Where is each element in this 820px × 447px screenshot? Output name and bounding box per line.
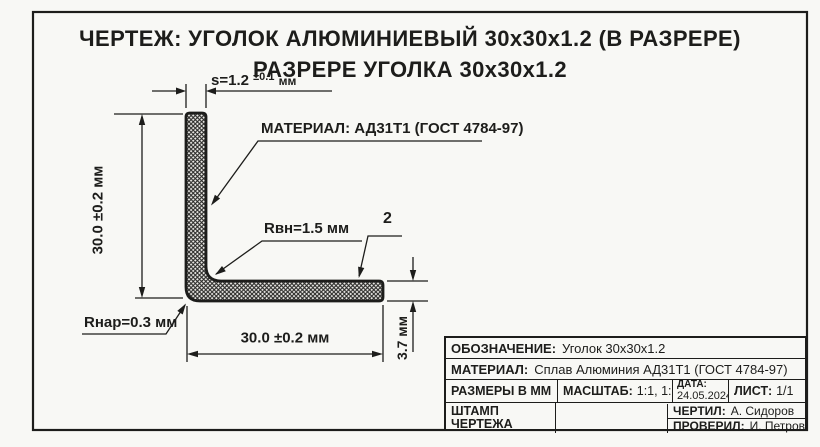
units-cell: РАЗМЕРЫ В ММ: [446, 380, 557, 402]
dimension-wall-thickness: s=1.2 ±0.1 мм: [211, 71, 296, 89]
wall-thickness-value: s=1.2: [211, 72, 249, 89]
designation-label: ОБОЗНАЧЕНИЕ:: [451, 341, 556, 356]
designation-row: ОБОЗНАЧЕНИЕ: Уголок 30x30x1.2: [446, 338, 805, 358]
drawing-title-line2: РАЗРЕРЕ УГОЛКА 30x30x1.2: [0, 57, 820, 83]
sheet-label: ЛИСТ:: [734, 384, 772, 398]
checked-value: И. Петров: [750, 419, 805, 433]
dimension-height: 30.0 ±0.2 мм: [90, 166, 107, 255]
dimension-flange-thickness: 3.7 мм: [394, 316, 410, 360]
outer-radius-callout: Rнар=0.3 мм: [84, 314, 177, 331]
wall-thickness-tolerance: ±0.1: [253, 71, 274, 83]
sheet-cell: ЛИСТ: 1/1: [728, 380, 805, 402]
stamp-line2: ЧЕРТЕЖА: [451, 418, 513, 431]
dimension-width: 30.0 ±0.2 мм: [241, 330, 330, 347]
checked-label: ПРОВЕРИЛ:: [673, 419, 745, 433]
date-value: 24.05.2024: [677, 390, 728, 402]
date-cell: ДАТА: 24.05.2024: [672, 380, 728, 402]
stamp-cell: ШТАМП ЧЕРТЕЖА: [446, 403, 555, 433]
scale-cell: МАСШТАБ: 1:1, 1:2: [557, 380, 672, 402]
wall-thickness-unit: мм: [279, 74, 297, 88]
units-label: РАЗМЕРЫ В ММ: [451, 384, 551, 398]
drawn-label: ЧЕРТИЛ:: [673, 404, 726, 418]
designation-value: Уголок 30x30x1.2: [562, 341, 665, 356]
material-label: МАТЕРИАЛ:: [451, 362, 528, 377]
material-value: Сплав Алюминия АД31Т1 (ГОСТ 4784-97): [534, 362, 787, 377]
sheet-value: 1/1: [776, 384, 793, 398]
scale-label: МАСШТАБ:: [563, 384, 633, 398]
date-label: ДАТА:: [677, 380, 707, 390]
drawing-sheet: ЧЕРТЕЖ: УГОЛОК АЛЮМИНИЕВЫЙ 30x30x1.2 (В …: [0, 0, 820, 447]
checked-row: ПРОВЕРИЛ: И. Петров: [668, 418, 805, 433]
inner-radius-callout: Rвн=1.5 мм: [264, 220, 349, 237]
drawn-row: ЧЕРТИЛ: А. Сидоров: [668, 404, 805, 418]
item-number-callout: 2: [383, 210, 392, 228]
scale-value: 1:1, 1:2: [637, 384, 672, 398]
material-callout: МАТЕРИАЛ: АД31Т1 (ГОСТ 4784-97): [261, 120, 523, 137]
drawing-title-line1: ЧЕРТЕЖ: УГОЛОК АЛЮМИНИЕВЫЙ 30x30x1.2 (В …: [0, 26, 820, 52]
drawn-value: А. Сидоров: [731, 404, 794, 418]
info-row: РАЗМЕРЫ В ММ МАСШТАБ: 1:1, 1:2 ДАТА: 24.…: [446, 379, 805, 402]
stamp-row: ШТАМП ЧЕРТЕЖА ЧЕРТИЛ: А. Сидоров ПРОВЕРИ…: [446, 402, 805, 433]
material-row: МАТЕРИАЛ: Сплав Алюминия АД31Т1 (ГОСТ 47…: [446, 358, 805, 379]
title-block: ОБОЗНАЧЕНИЕ: Уголок 30x30x1.2 МАТЕРИАЛ: …: [444, 336, 807, 431]
signatures-cell: ЧЕРТИЛ: А. Сидоров ПРОВЕРИЛ: И. Петров: [667, 404, 805, 433]
empty-cell: [555, 403, 667, 433]
